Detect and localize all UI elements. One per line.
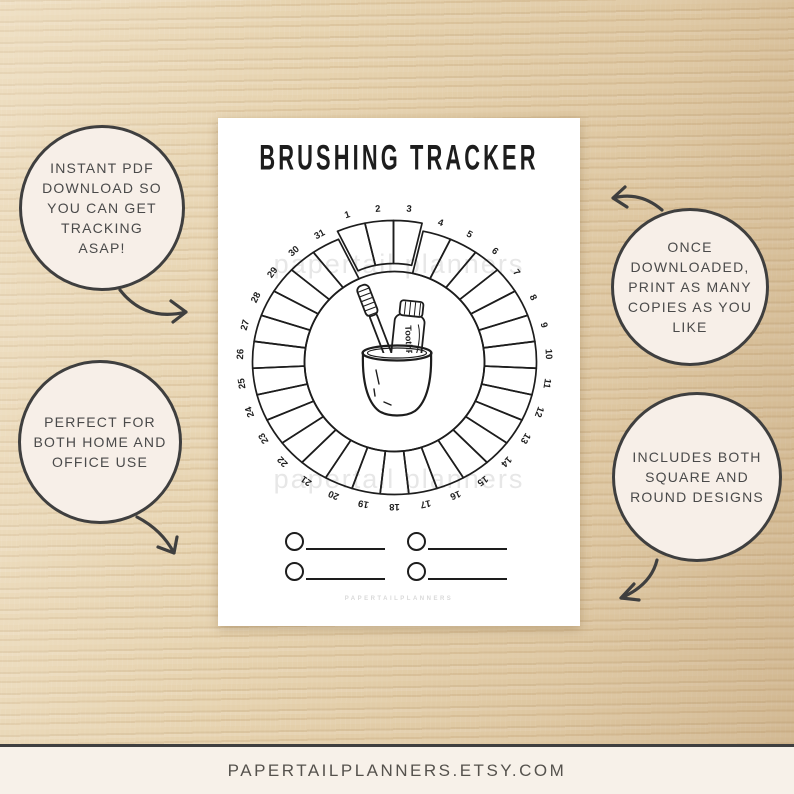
wheel-day-label: 12 bbox=[532, 405, 546, 419]
wheel-day-label: 28 bbox=[249, 290, 264, 304]
wheel-day-label: 17 bbox=[419, 497, 432, 510]
checklist-circle bbox=[407, 562, 426, 581]
wheel-day-label: 24 bbox=[243, 404, 257, 418]
checklist bbox=[285, 532, 507, 581]
brand-caption: PAPERTAILPLANNERS bbox=[218, 596, 580, 602]
checklist-slot bbox=[285, 562, 385, 581]
wheel-day-label: 9 bbox=[538, 321, 550, 329]
wheel-day-label: 1 bbox=[343, 209, 352, 221]
footer-bar: PAPERTAILPLANNERS.ETSY.COM bbox=[0, 744, 794, 794]
checklist-slot bbox=[407, 532, 507, 551]
wheel-day-segment bbox=[302, 430, 351, 478]
callout-print-copies: ONCE DOWNLOADED, PRINT AS MANY COPIES AS… bbox=[611, 208, 769, 366]
wheel-day-label: 29 bbox=[265, 265, 280, 280]
wheel-day-label: 19 bbox=[357, 497, 370, 510]
wheel-day-label: 22 bbox=[275, 454, 290, 469]
wheel-day-segment bbox=[394, 221, 423, 266]
wheel-day-label: 25 bbox=[236, 377, 249, 390]
wheel-day-segment bbox=[253, 366, 308, 395]
wheel-day-segment bbox=[261, 291, 318, 330]
wheel-day-label: 13 bbox=[518, 431, 533, 446]
cup-illustration bbox=[363, 346, 432, 416]
wheel-day-label: 21 bbox=[298, 473, 314, 488]
callout-text: INSTANT PDF DOWNLOAD SO YOU CAN GET TRAC… bbox=[42, 158, 162, 258]
product-photo-scene: papertail planners papertail planners BR… bbox=[0, 0, 794, 794]
footer-url: PAPERTAILPLANNERS.ETSY.COM bbox=[228, 761, 567, 781]
checklist-line bbox=[428, 578, 507, 580]
wheel-day-label: 23 bbox=[256, 431, 271, 446]
wheel-day-label: 3 bbox=[406, 204, 412, 215]
checklist-circle bbox=[285, 562, 304, 581]
wheel-day-label: 2 bbox=[375, 204, 381, 215]
callout-text: INCLUDES BOTH SQUARE AND ROUND DESIGNS bbox=[630, 447, 764, 507]
wheel-day-label: 16 bbox=[448, 488, 462, 502]
checklist-line bbox=[306, 578, 385, 580]
callout-instant-download: INSTANT PDF DOWNLOAD SO YOU CAN GET TRAC… bbox=[19, 125, 185, 291]
checklist-line bbox=[428, 548, 507, 550]
wheel-day-label: 30 bbox=[287, 244, 302, 259]
tracker-page: papertail planners papertail planners BR… bbox=[218, 118, 580, 626]
wheel-day-label: 27 bbox=[239, 319, 252, 332]
wheel-day-segment bbox=[254, 315, 310, 348]
wheel-day-label: 18 bbox=[389, 501, 400, 512]
wheel-day-segment bbox=[352, 447, 385, 493]
checklist-row bbox=[285, 562, 507, 581]
callout-home-office: PERFECT FOR BOTH HOME AND OFFICE USE bbox=[18, 360, 182, 524]
wheel-day-label: 5 bbox=[464, 229, 475, 242]
arrow-bottom-left-icon bbox=[137, 517, 177, 553]
wheel-day-label: 10 bbox=[543, 349, 555, 360]
wheel-day-segment bbox=[475, 384, 532, 420]
wheel-day-label: 14 bbox=[498, 454, 514, 470]
wheel-day-segment bbox=[365, 221, 394, 266]
checklist-slot bbox=[285, 532, 385, 551]
arrow-top-left-icon bbox=[120, 290, 186, 322]
arrow-bottom-right-icon bbox=[621, 560, 657, 600]
wheel-day-segment bbox=[252, 341, 305, 368]
wheel-day-label: 7 bbox=[510, 267, 522, 278]
wheel-day-segment bbox=[282, 417, 336, 463]
callout-text: ONCE DOWNLOADED, PRINT AS MANY COPIES AS… bbox=[628, 237, 752, 337]
checklist-circle bbox=[285, 532, 304, 551]
callout-text: PERFECT FOR BOTH HOME AND OFFICE USE bbox=[33, 412, 166, 472]
wheel-day-label: 15 bbox=[474, 473, 490, 488]
wheel-day-label: 20 bbox=[327, 488, 341, 502]
wheel-day-segment bbox=[292, 252, 344, 299]
wheel-day-segment bbox=[313, 239, 359, 287]
wheel-day-label: 26 bbox=[235, 349, 247, 360]
arrow-top-right-icon bbox=[613, 187, 662, 210]
wheel-day-label: 8 bbox=[527, 293, 539, 303]
wheel-day-segment bbox=[460, 270, 515, 314]
wheel-day-segment bbox=[483, 341, 536, 368]
wheel-day-segment bbox=[267, 401, 323, 443]
wheel-day-label: 11 bbox=[540, 378, 553, 390]
callout-square-round: INCLUDES BOTH SQUARE AND ROUND DESIGNS bbox=[612, 392, 782, 562]
wheel-day-segment bbox=[274, 270, 329, 314]
checklist-slot bbox=[407, 562, 507, 581]
checklist-row bbox=[285, 532, 507, 551]
checklist-line bbox=[306, 548, 385, 550]
checklist-circle bbox=[407, 532, 426, 551]
wheel-day-label: 31 bbox=[312, 227, 327, 242]
wheel-day-label: 4 bbox=[436, 217, 445, 229]
wheel-day-segment bbox=[438, 430, 487, 478]
wheel-day-label: 6 bbox=[489, 246, 500, 258]
